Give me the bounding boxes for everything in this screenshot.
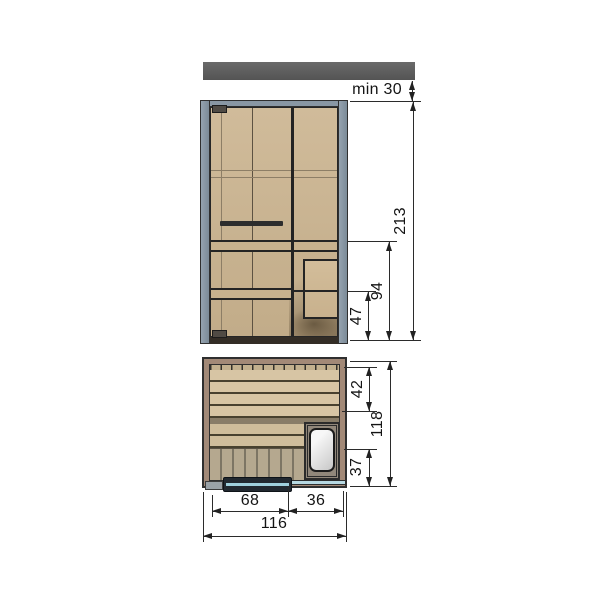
extension-line [344,367,377,368]
extension-line [343,491,344,517]
door-hinge-top [212,105,227,113]
dim-label-overall-depth: 118 [369,411,387,437]
upper-bench-edge [211,240,337,252]
arrowhead [365,331,371,340]
dim-label-overall-height: 213 [392,207,410,235]
arrowhead [386,242,392,251]
glass-front-interior [210,107,338,337]
front-elevation-view [200,100,348,344]
panel-joint-line [211,170,337,171]
door-hinge-bottom [212,330,227,338]
dim-line-overall-depth [390,361,391,486]
arrowhead [410,331,416,340]
arrowhead [279,508,288,514]
extension-line [350,486,397,487]
dim-label-overall-width: 116 [261,515,287,533]
lower-bench-edge [211,288,293,300]
dim-label-upper-bench-height: 94 [369,282,387,300]
arrowhead [366,367,372,376]
arrowhead [212,508,221,514]
extension-line [344,449,377,450]
dim-line-door-width [212,511,288,512]
arrowhead [410,102,416,111]
plan-view [202,357,347,488]
dim-line-overall-height [413,102,414,340]
sauna-dimension-diagram: min 30 213 94 47 42 118 37 68 36 116 [0,0,600,600]
lower-bench-boards [210,424,304,448]
dim-label-bench-depth: 42 [349,380,367,398]
arrowhead [387,361,393,370]
arrowhead [203,533,212,539]
dim-label-ceiling-clearance: min 30 [352,81,402,99]
right-frame-post [338,100,348,344]
arrowhead [334,508,343,514]
dim-label-lower-bench-height: 47 [348,307,366,325]
floor-strip [210,337,338,344]
dim-label-heater-bay-width: 36 [307,492,325,510]
heater-top-view [309,428,335,472]
ceiling-bar [203,62,415,80]
sliding-door-panel [223,477,292,492]
arrowhead [387,477,393,486]
panel-joint-line [211,177,337,178]
arrowhead [366,449,372,458]
extension-line [346,492,347,542]
arrowhead [386,331,392,340]
door-glass-line [226,483,289,486]
bench-slats [210,370,339,418]
lower-bench-line [291,290,338,292]
floor-slats [210,448,304,480]
arrowhead [337,533,346,539]
interior-cavity [209,364,340,481]
extension-line [350,340,421,341]
arrowhead [409,92,415,101]
dim-label-heater-depth: 37 [348,458,366,476]
heater-enclosure [304,422,340,480]
arrowhead [288,508,297,514]
arrowhead [366,477,372,486]
dim-label-door-width: 68 [241,492,259,510]
door-edge-line [291,108,294,336]
arrowhead [366,402,372,411]
door-handle-tab [205,481,223,490]
arrowhead [409,81,415,90]
door-handle [220,221,283,226]
heater-front [303,259,338,319]
left-frame-post [200,100,210,344]
dim-line-upper-bench-height [389,242,390,340]
dim-line-overall-width [203,536,346,537]
